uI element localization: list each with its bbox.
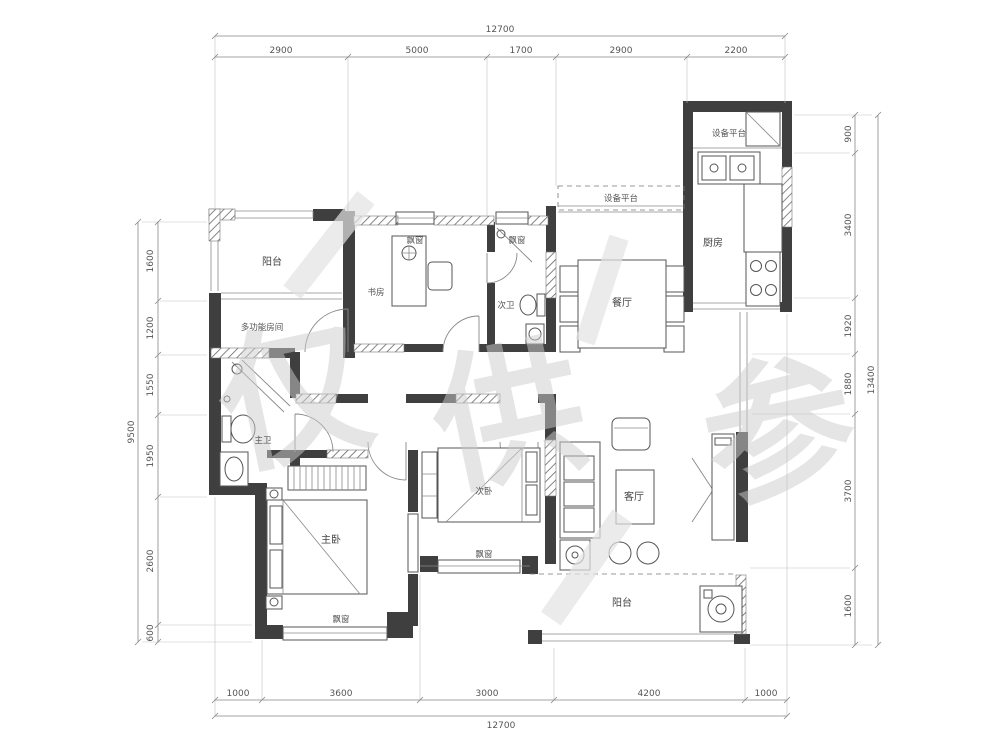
dim-top-seg-1: 2900 bbox=[270, 46, 293, 56]
dim-left-seg-1: 1600 bbox=[146, 249, 156, 272]
label-study: 书房 bbox=[367, 287, 384, 298]
dim-left-seg-5: 2600 bbox=[146, 549, 156, 572]
label-master-bedroom: 主卧 bbox=[321, 533, 341, 546]
dim-top-seg-2: 5000 bbox=[406, 46, 429, 56]
kitchen-fixtures bbox=[698, 112, 782, 306]
label-kitchen: 厨房 bbox=[703, 236, 723, 249]
label-bay-window-4: 飘窗 bbox=[332, 614, 349, 625]
dim-left-total: 9500 bbox=[127, 420, 137, 443]
dimension-top: 12700 2900 5000 1700 2900 2200 bbox=[212, 25, 788, 218]
label-bay-window-3: 飘窗 bbox=[475, 549, 492, 560]
label-second-bath: 次卫 bbox=[497, 300, 515, 311]
floorplan-canvas: 仅 供 参 阳台 多功能房间 主卫 书房 次卫 飘窗 飘窗 餐厅 厨房 设备平台… bbox=[0, 0, 1000, 750]
dim-bottom-seg-4: 4200 bbox=[638, 689, 661, 699]
dim-left-seg-2: 1200 bbox=[146, 316, 156, 339]
label-master-bath: 主卫 bbox=[254, 435, 272, 446]
floorplan-drawing: 仅 供 参 阳台 多功能房间 主卫 书房 次卫 飘窗 飘窗 餐厅 厨房 设备平台… bbox=[0, 0, 1000, 750]
label-equipment-platform-1: 设备平台 bbox=[604, 193, 638, 204]
dim-bottom-seg-5: 1000 bbox=[755, 689, 778, 699]
dim-left-seg-6: 600 bbox=[146, 624, 156, 641]
dim-right-seg-2: 3400 bbox=[844, 213, 854, 236]
dim-top-seg-3: 1700 bbox=[510, 46, 533, 56]
label-bay-window-1: 飘窗 bbox=[406, 235, 423, 246]
balcony-washer bbox=[700, 586, 742, 632]
dim-bottom-total: 12700 bbox=[487, 721, 516, 731]
label-living: 客厅 bbox=[624, 490, 644, 503]
dim-right-total: 13400 bbox=[867, 365, 877, 394]
label-second-bedroom: 次卧 bbox=[475, 486, 493, 497]
label-balcony-bottom: 阳台 bbox=[612, 596, 632, 609]
label-bay-window-2: 飘窗 bbox=[508, 235, 525, 246]
label-dining: 餐厅 bbox=[612, 296, 632, 309]
label-multi-room: 多功能房间 bbox=[241, 322, 284, 333]
dim-right-seg-1: 900 bbox=[844, 125, 854, 142]
dim-right-seg-4: 1880 bbox=[844, 372, 854, 395]
dim-left-seg-4: 1950 bbox=[146, 444, 156, 467]
dim-left-seg-3: 1550 bbox=[146, 373, 156, 396]
dim-right-seg-3: 1920 bbox=[844, 314, 854, 337]
dim-top-seg-4: 2900 bbox=[610, 46, 633, 56]
dim-top-seg-5: 2200 bbox=[725, 46, 748, 56]
dim-top-total: 12700 bbox=[486, 25, 515, 35]
dim-bottom-seg-2: 3600 bbox=[330, 689, 353, 699]
dim-bottom-seg-3: 3000 bbox=[476, 689, 499, 699]
label-equipment-platform-2: 设备平台 bbox=[712, 128, 746, 139]
dim-right-seg-5: 3700 bbox=[844, 479, 854, 502]
study-desk bbox=[392, 236, 452, 306]
label-balcony-top: 阳台 bbox=[262, 255, 282, 268]
dim-bottom-seg-1: 1000 bbox=[227, 689, 250, 699]
dim-right-seg-6: 1600 bbox=[844, 594, 854, 617]
